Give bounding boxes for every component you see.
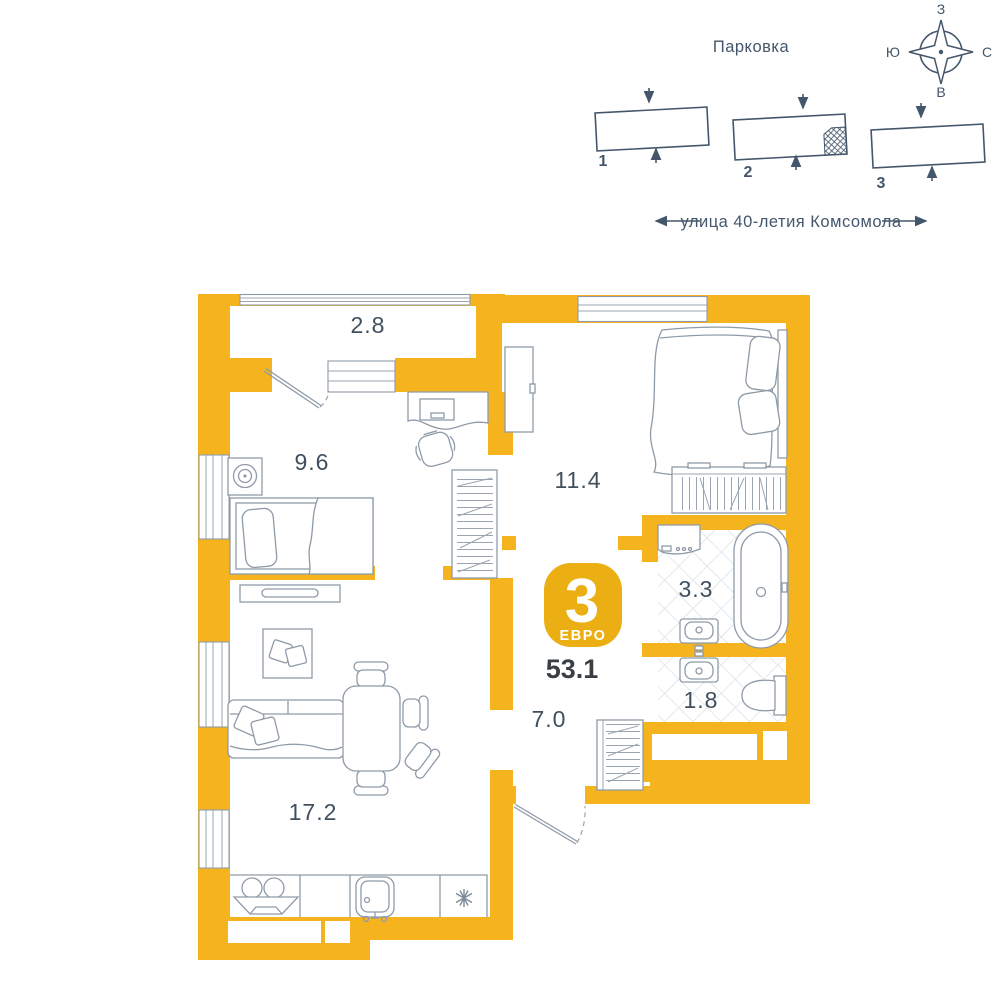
compass-west: З	[937, 1, 945, 17]
compass-north: С	[982, 44, 992, 60]
hallway-area-label: 7.0	[532, 706, 567, 732]
site-plan: Парковка З С В Ю 1 2	[595, 1, 992, 231]
cabinet	[505, 347, 533, 432]
bedroom-small-furniture	[228, 392, 497, 602]
rug-with-pillows	[263, 629, 312, 678]
living-kitchen-area-label: 17.2	[289, 799, 338, 825]
tv-stand	[240, 585, 340, 602]
single-bed	[230, 498, 373, 574]
chair	[354, 662, 388, 687]
bedroom-small-area-label: 9.6	[295, 449, 330, 475]
balcony-window	[240, 295, 470, 306]
building-2: 2	[733, 94, 847, 181]
building-2-hatched-corner	[824, 127, 847, 155]
wall-opening	[763, 731, 787, 760]
kitchen-sink	[356, 877, 394, 922]
living-kitchen-furniture	[228, 629, 487, 922]
snowflake-icon	[456, 889, 472, 907]
chair	[401, 738, 441, 780]
building-3: 3	[871, 103, 985, 192]
badge-rooms-count: 3	[565, 567, 599, 636]
badge-layout-type: ЕВРО	[560, 628, 607, 644]
building-1-number: 1	[599, 153, 608, 170]
wall-opening	[325, 921, 350, 943]
tap	[782, 583, 787, 592]
bathroom-area-label: 3.3	[679, 576, 714, 602]
kitchen-counter	[230, 875, 487, 922]
blanket	[309, 498, 373, 574]
building-2-number: 2	[744, 164, 753, 181]
total-area-label: 53.1	[546, 654, 599, 684]
balcony-area-label: 2.8	[351, 312, 386, 338]
balcony-sill-window	[328, 361, 395, 392]
chair	[354, 770, 388, 795]
wc-area-label: 1.8	[684, 687, 719, 713]
nightstand-speaker	[228, 458, 262, 495]
street-row: улица 40-летия Комсомола	[656, 213, 926, 231]
compass-south: Ю	[886, 44, 900, 60]
entrance-door	[514, 805, 585, 845]
dresser	[672, 463, 786, 513]
pillow	[745, 335, 781, 391]
hallway-wardrobe	[597, 720, 643, 790]
apartment-badge: 3 ЕВРО	[544, 563, 622, 647]
desk-chair	[412, 427, 459, 469]
left-window-living-1	[199, 642, 229, 727]
pillow	[242, 508, 278, 568]
building-3-number: 3	[877, 175, 886, 192]
building-1: 1	[595, 88, 709, 170]
pillow	[737, 389, 781, 435]
street-label: улица 40-летия Комсомола	[680, 213, 901, 231]
balcony-door	[264, 369, 329, 409]
left-window-living-2	[199, 810, 229, 868]
dining-table	[343, 662, 441, 795]
stove	[234, 878, 298, 914]
washing-machine	[658, 525, 700, 554]
wardrobe-small-bedroom	[452, 470, 497, 578]
sink-wc	[680, 658, 718, 682]
floor-plan: 2.8 9.6 11.4 3.3 1.8 7.0 17.2 3 ЕВРО 53.…	[198, 294, 810, 960]
desk	[408, 392, 488, 429]
parking-label: Парковка	[713, 38, 790, 56]
master-bedroom-window	[578, 297, 707, 322]
left-window-bedroom	[199, 455, 229, 539]
compass-rose-icon: З С В Ю	[886, 1, 992, 100]
bedroom-master-area-label: 11.4	[554, 467, 601, 493]
chair	[403, 696, 428, 730]
bathtub	[734, 524, 788, 648]
floor-plan-page: Парковка З С В Ю 1 2	[0, 0, 1000, 1000]
master-bedroom-furniture	[505, 327, 787, 513]
sofa	[228, 700, 344, 758]
wall-opening	[228, 921, 321, 943]
pillow	[250, 716, 279, 745]
double-bed	[651, 327, 787, 475]
wall-opening	[652, 734, 757, 760]
compass-east: В	[936, 84, 945, 100]
hallway-furniture	[597, 720, 643, 790]
